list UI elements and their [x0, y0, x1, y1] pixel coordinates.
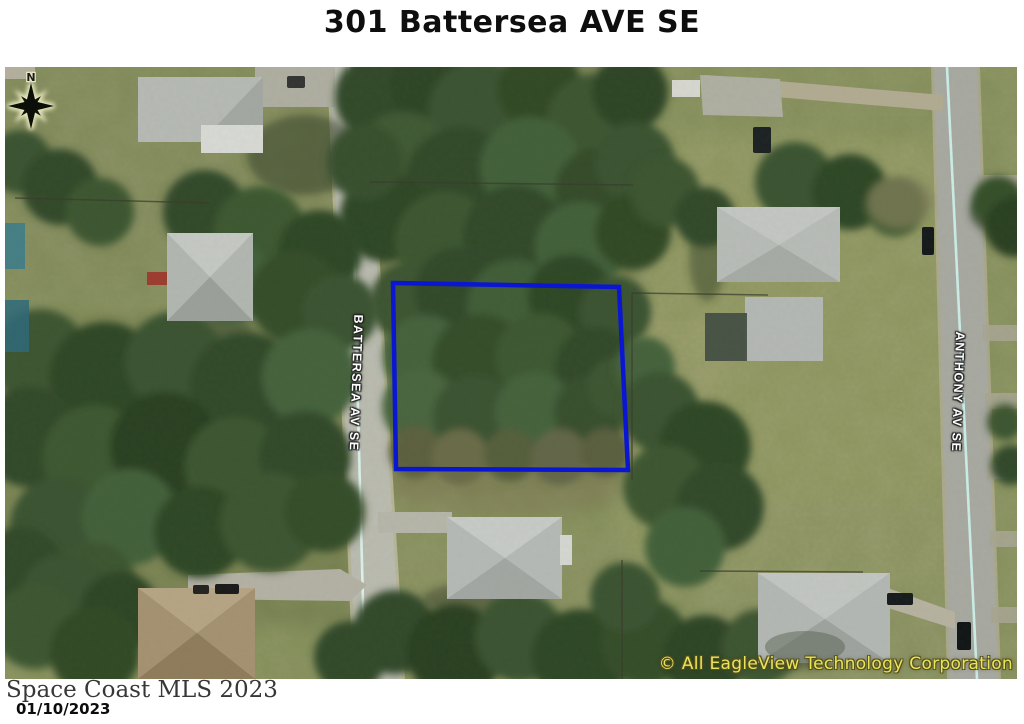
mls-photo-page: 301 Battersea AVE SE — [0, 0, 1024, 724]
compass-north-label: N — [26, 71, 35, 84]
scene-grain — [5, 67, 1017, 679]
aerial-scene: N — [5, 67, 1017, 679]
aerial-photo: N BATTERSEA AV SE ANTHONY AV SE © All Ea… — [5, 67, 1017, 679]
mls-attribution: Space Coast MLS 2023 — [6, 679, 278, 702]
copyright-watermark: © All EagleView Technology Corporation — [659, 654, 1013, 674]
date-stamp: 01/10/2023 — [16, 700, 110, 718]
page-title: 301 Battersea AVE SE — [0, 5, 1024, 40]
